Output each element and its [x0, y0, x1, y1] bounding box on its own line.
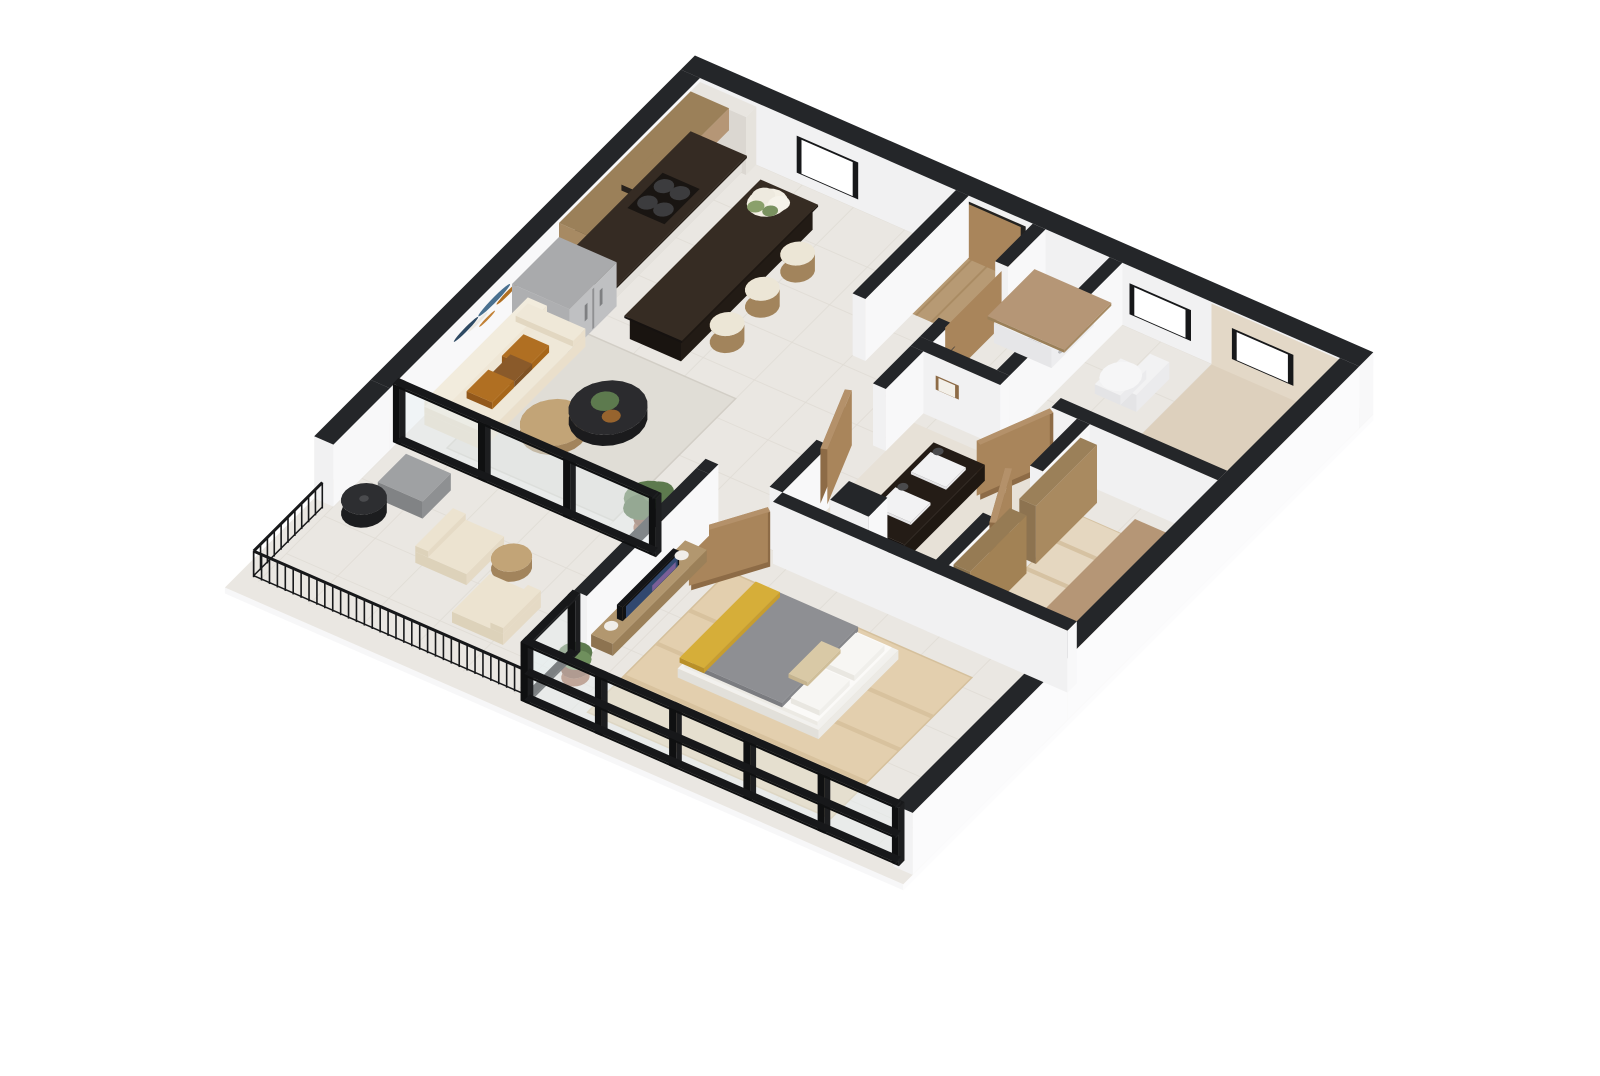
- bar-stool-3: [710, 312, 745, 353]
- refrigerator-handle-1: [600, 288, 603, 307]
- kettle-grill: [341, 483, 387, 528]
- refrigerator-door-seam: [592, 288, 594, 330]
- bar-stool-1: [780, 242, 815, 283]
- balcony-side-table: [491, 543, 532, 582]
- floor-plan-3d-render: [0, 0, 1600, 1076]
- refrigerator-handle-2: [585, 303, 588, 322]
- floor-plan-page: 3D isometric render of a one-bedroom apa…: [0, 0, 1600, 1076]
- bar-stool-2: [745, 277, 780, 318]
